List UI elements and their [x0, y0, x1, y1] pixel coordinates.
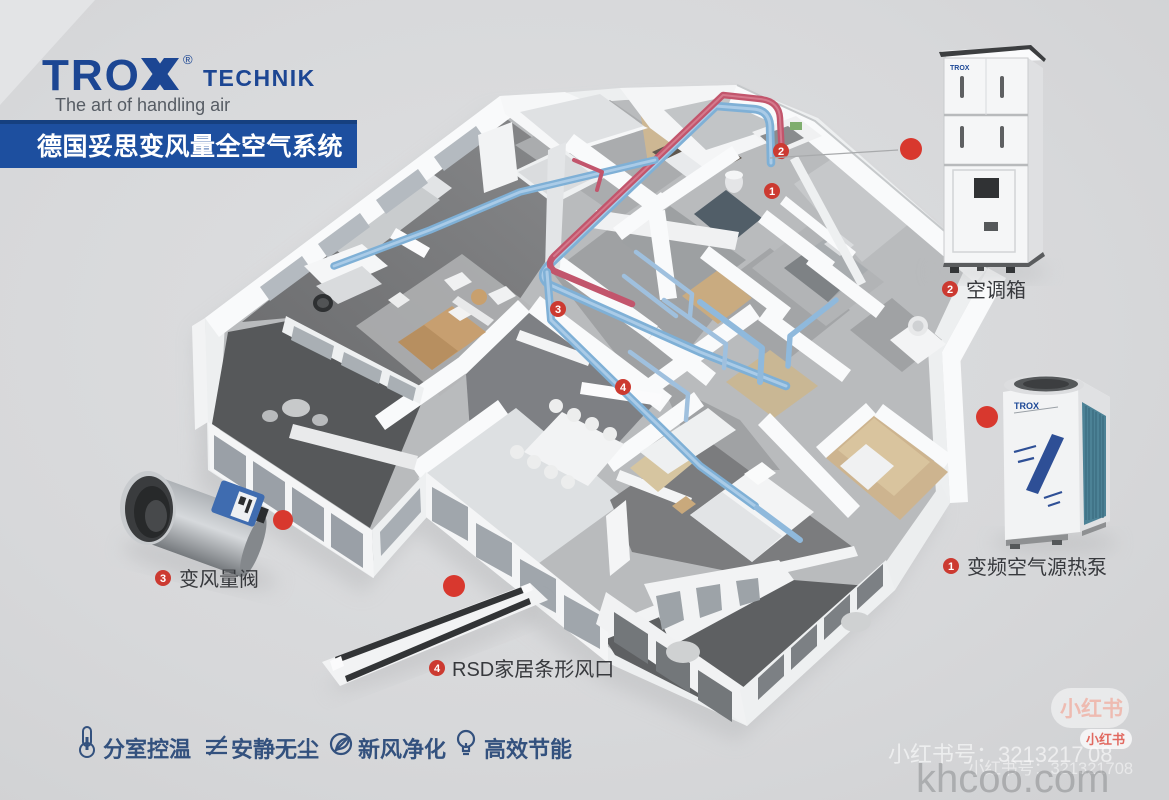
svg-text:TRO: TRO	[42, 51, 141, 100]
svg-text:1: 1	[769, 186, 775, 198]
svg-text:4: 4	[434, 663, 441, 675]
svg-text:TECHNIK: TECHNIK	[203, 65, 316, 91]
svg-text:4: 4	[620, 382, 627, 394]
svg-text:德国妥思变风量全空气系统: 德国妥思变风量全空气系统	[37, 132, 343, 161]
svg-text:3: 3	[555, 304, 561, 316]
svg-text:TROX: TROX	[1014, 401, 1039, 411]
svg-text:1: 1	[948, 561, 954, 573]
svg-text:RSD家居条形风口: RSD家居条形风口	[452, 658, 614, 681]
svg-text:变风量阀: 变风量阀	[179, 568, 259, 591]
svg-text:新风净化: 新风净化	[358, 737, 446, 762]
svg-text:空调箱: 空调箱	[966, 279, 1026, 302]
svg-text:2: 2	[778, 146, 784, 158]
svg-text:2: 2	[947, 284, 953, 296]
svg-text:The art of handling air: The art of handling air	[55, 95, 230, 115]
svg-text:高效节能: 高效节能	[484, 737, 572, 762]
svg-text:小红书: 小红书	[1060, 697, 1123, 721]
svg-text:khcoo.com: khcoo.com	[916, 757, 1109, 800]
svg-text:TROX: TROX	[950, 65, 970, 72]
svg-text:变频空气源热泵: 变频空气源热泵	[967, 556, 1107, 579]
svg-text:安静无尘: 安静无尘	[231, 737, 319, 762]
svg-text:®: ®	[183, 52, 193, 67]
svg-text:3: 3	[160, 573, 166, 585]
svg-text:分室控温: 分室控温	[103, 737, 191, 762]
